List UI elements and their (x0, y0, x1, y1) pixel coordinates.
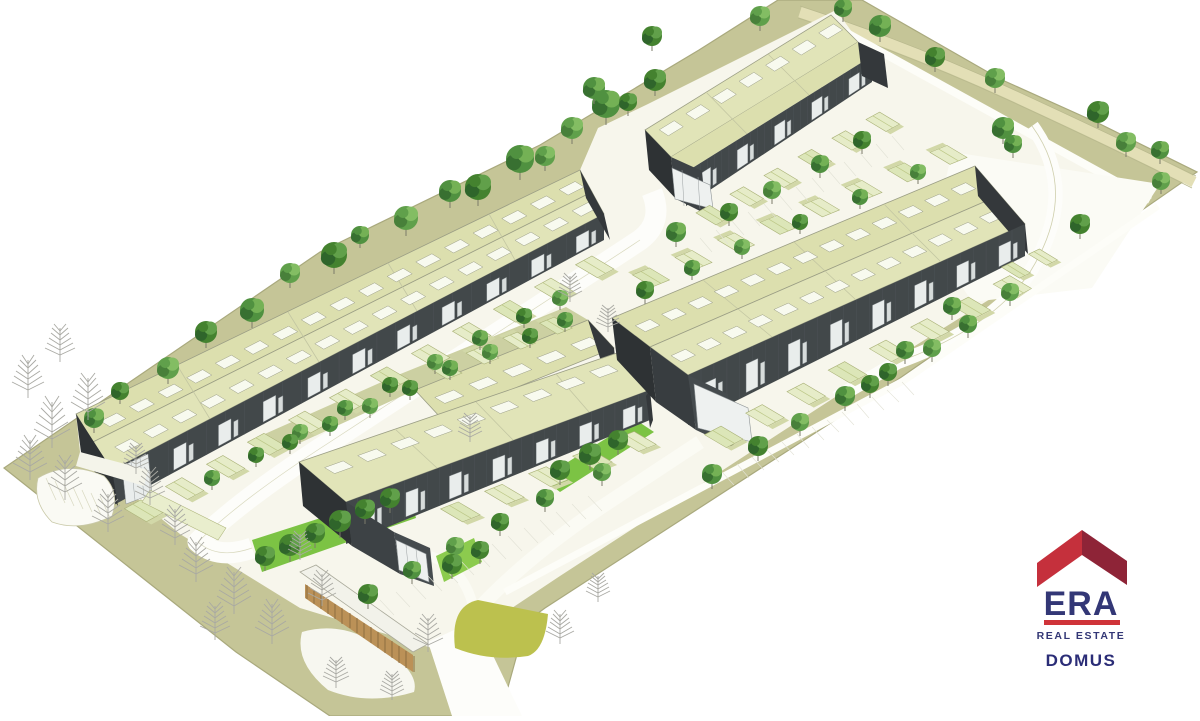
svg-text:ERA: ERA (1044, 585, 1119, 623)
svg-text:REAL ESTATE: REAL ESTATE (1037, 630, 1126, 642)
svg-text:DOMUS: DOMUS (1046, 651, 1117, 670)
